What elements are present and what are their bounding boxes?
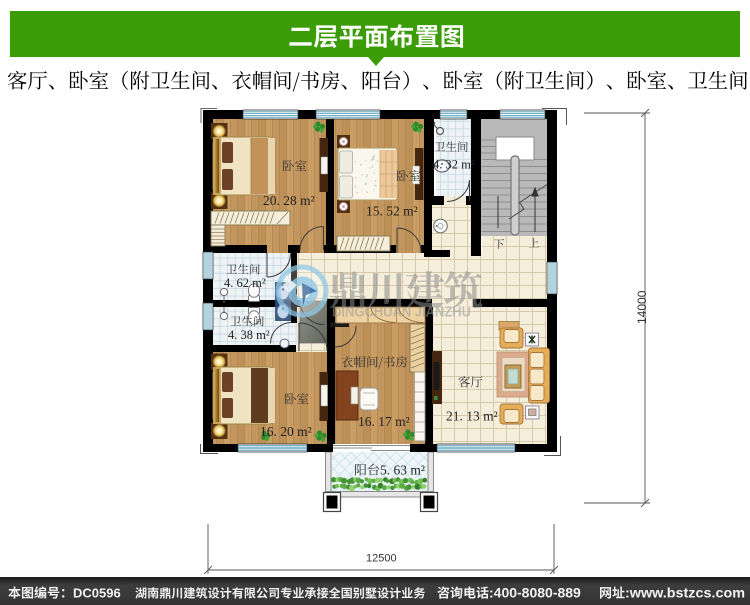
svg-text:16. 17 m²: 16. 17 m² xyxy=(358,414,410,429)
svg-text::400-8080-889: :400-8080-889 xyxy=(489,585,581,601)
svg-text:21. 13 m²: 21. 13 m² xyxy=(446,409,498,424)
svg-text:5. 63 m²: 5. 63 m² xyxy=(380,463,425,478)
svg-text:12500: 12500 xyxy=(366,553,397,565)
svg-text:4. 38 m²: 4. 38 m² xyxy=(228,328,270,342)
svg-text::www.bstzcs.com: :www.bstzcs.com xyxy=(625,585,745,601)
svg-text:15. 52 m²: 15. 52 m² xyxy=(366,204,418,219)
svg-text:14000: 14000 xyxy=(635,290,649,324)
svg-text:4. 62 m²: 4. 62 m² xyxy=(224,276,266,290)
svg-text:DC0596: DC0596 xyxy=(73,586,121,601)
svg-text:20. 28 m²: 20. 28 m² xyxy=(263,193,315,208)
svg-text:DINGCHUAN JIANZHU: DINGCHUAN JIANZHU xyxy=(332,305,471,321)
svg-text:4. 32 m²: 4. 32 m² xyxy=(433,158,475,172)
svg-text:16. 20 m²: 16. 20 m² xyxy=(260,424,312,439)
